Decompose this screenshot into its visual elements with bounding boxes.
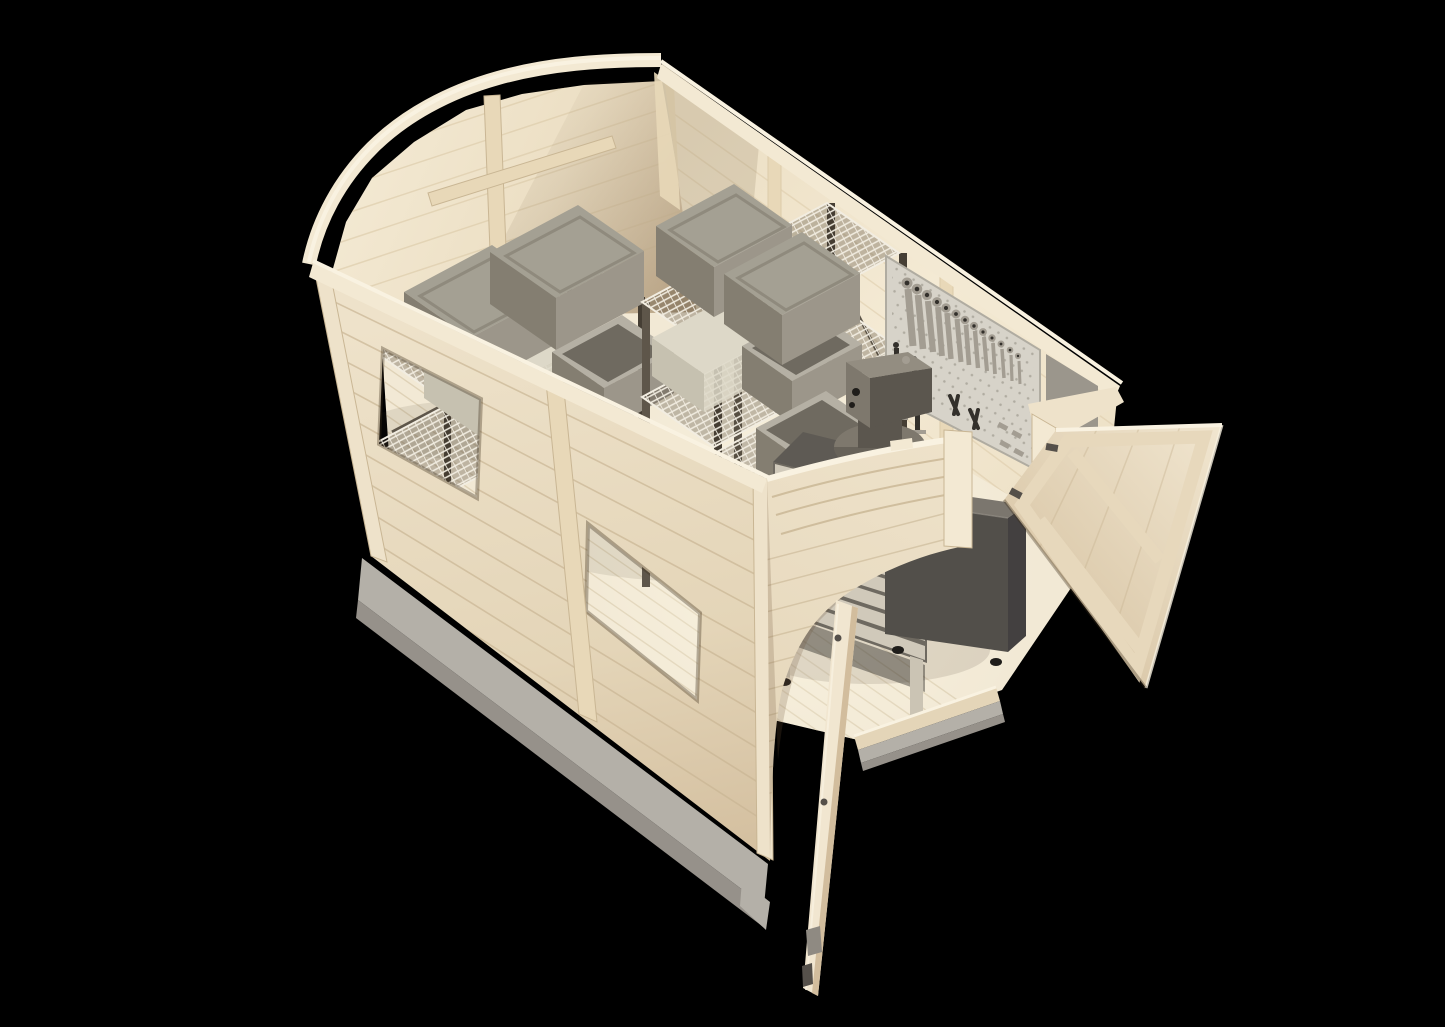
door-hinge-1 <box>835 635 842 642</box>
door-latch <box>806 926 822 956</box>
cabinet-foot-2 <box>990 658 1002 666</box>
motor-knob-2 <box>849 402 855 408</box>
door-hinge-2 <box>821 799 828 806</box>
render-canvas <box>0 0 1445 1027</box>
motor-cap <box>902 356 910 364</box>
cabinet-foot <box>892 646 904 654</box>
door-bracket <box>802 963 813 987</box>
motor-knob <box>852 388 860 396</box>
shed-render <box>0 0 1445 1027</box>
door-jamb-left <box>944 430 972 548</box>
